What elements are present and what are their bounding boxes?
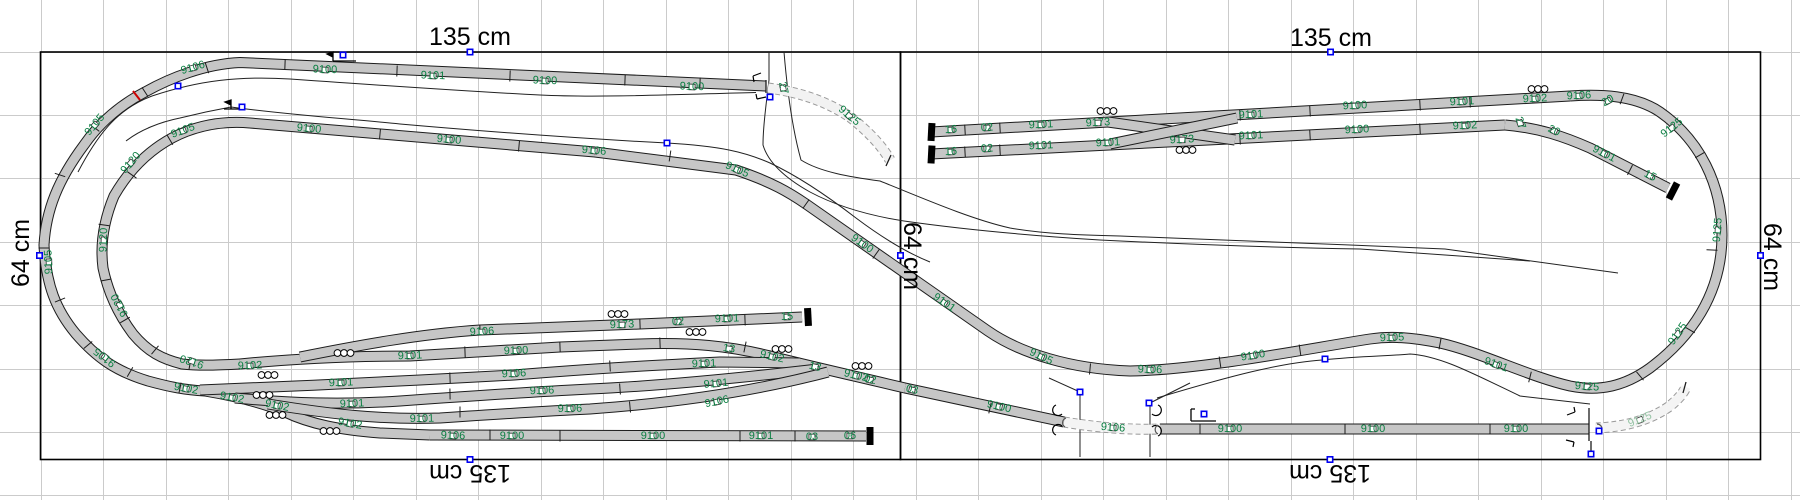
svg-text:16: 16 [945, 123, 958, 136]
svg-text:9173: 9173 [1085, 116, 1110, 129]
svg-text:9101: 9101 [1238, 108, 1263, 121]
svg-text:9106: 9106 [501, 367, 526, 380]
svg-text:9100: 9100 [1504, 423, 1528, 435]
svg-text:9100: 9100 [641, 430, 665, 442]
svg-text:9101: 9101 [1028, 139, 1053, 152]
svg-text:06: 06 [844, 430, 856, 442]
svg-text:9102: 9102 [173, 381, 199, 397]
svg-text:9101: 9101 [398, 349, 423, 362]
svg-text:16: 16 [945, 145, 958, 158]
svg-text:135 cm: 135 cm [1289, 459, 1371, 487]
svg-text:9101: 9101 [703, 377, 728, 391]
svg-text:9125: 9125 [1574, 380, 1599, 394]
svg-text:9101: 9101 [715, 312, 740, 325]
svg-text:9100: 9100 [1344, 123, 1369, 136]
svg-text:9101: 9101 [1095, 136, 1120, 149]
svg-text:135 cm: 135 cm [1290, 24, 1372, 52]
svg-text:02: 02 [672, 316, 685, 328]
svg-text:9106: 9106 [530, 384, 555, 397]
svg-text:9101: 9101 [340, 397, 365, 410]
svg-text:9100: 9100 [436, 133, 461, 147]
svg-text:9100: 9100 [296, 122, 321, 136]
svg-text:9100: 9100 [1361, 423, 1385, 435]
svg-text:9101: 9101 [1449, 95, 1474, 108]
svg-text:9106: 9106 [581, 144, 606, 158]
svg-text:9100: 9100 [500, 430, 524, 442]
svg-text:9100: 9100 [533, 74, 558, 87]
svg-text:9173: 9173 [1169, 133, 1194, 146]
svg-text:9106: 9106 [469, 325, 494, 338]
svg-text:9125: 9125 [1626, 410, 1653, 430]
svg-text:9105: 9105 [42, 250, 55, 275]
svg-text:9106: 9106 [1138, 363, 1163, 376]
svg-text:9102: 9102 [238, 359, 263, 372]
svg-text:64 cm: 64 cm [898, 222, 926, 290]
svg-text:9101: 9101 [1590, 143, 1617, 165]
svg-text:9125: 9125 [1711, 217, 1725, 242]
svg-text:9101: 9101 [421, 69, 446, 82]
svg-text:9120: 9120 [97, 228, 110, 253]
svg-text:02: 02 [981, 142, 994, 155]
svg-text:9101: 9101 [1483, 355, 1510, 375]
svg-text:9100: 9100 [680, 80, 705, 93]
svg-text:9100: 9100 [1342, 99, 1367, 112]
svg-text:9100: 9100 [504, 344, 529, 357]
svg-text:9102: 9102 [1522, 92, 1547, 105]
svg-text:64 cm: 64 cm [7, 219, 35, 287]
svg-text:9100: 9100 [986, 398, 1013, 415]
svg-text:03: 03 [806, 431, 818, 443]
svg-text:9100: 9100 [313, 63, 338, 76]
svg-text:9173: 9173 [610, 318, 635, 331]
svg-text:27: 27 [776, 81, 790, 95]
svg-text:02: 02 [981, 121, 994, 134]
svg-text:9105: 9105 [723, 159, 750, 180]
svg-text:9101: 9101 [329, 376, 354, 389]
svg-text:9101: 9101 [410, 413, 435, 425]
svg-text:9106: 9106 [441, 429, 466, 442]
svg-text:9105: 9105 [1380, 331, 1405, 344]
svg-text:9101: 9101 [749, 430, 773, 442]
svg-text:9102: 9102 [1452, 119, 1477, 132]
svg-text:64 cm: 64 cm [1758, 223, 1786, 291]
svg-text:9106: 9106 [1100, 421, 1125, 435]
svg-text:135 cm: 135 cm [429, 23, 511, 51]
svg-text:13: 13 [722, 342, 736, 356]
svg-text:15: 15 [781, 311, 794, 323]
svg-text:9106: 9106 [558, 403, 583, 415]
svg-text:9101: 9101 [692, 357, 717, 370]
svg-text:135 cm: 135 cm [429, 459, 511, 487]
svg-text:9101: 9101 [1028, 118, 1053, 131]
svg-text:9101: 9101 [1238, 129, 1263, 142]
svg-text:9106: 9106 [1566, 89, 1591, 102]
svg-text:9100: 9100 [1218, 423, 1242, 435]
